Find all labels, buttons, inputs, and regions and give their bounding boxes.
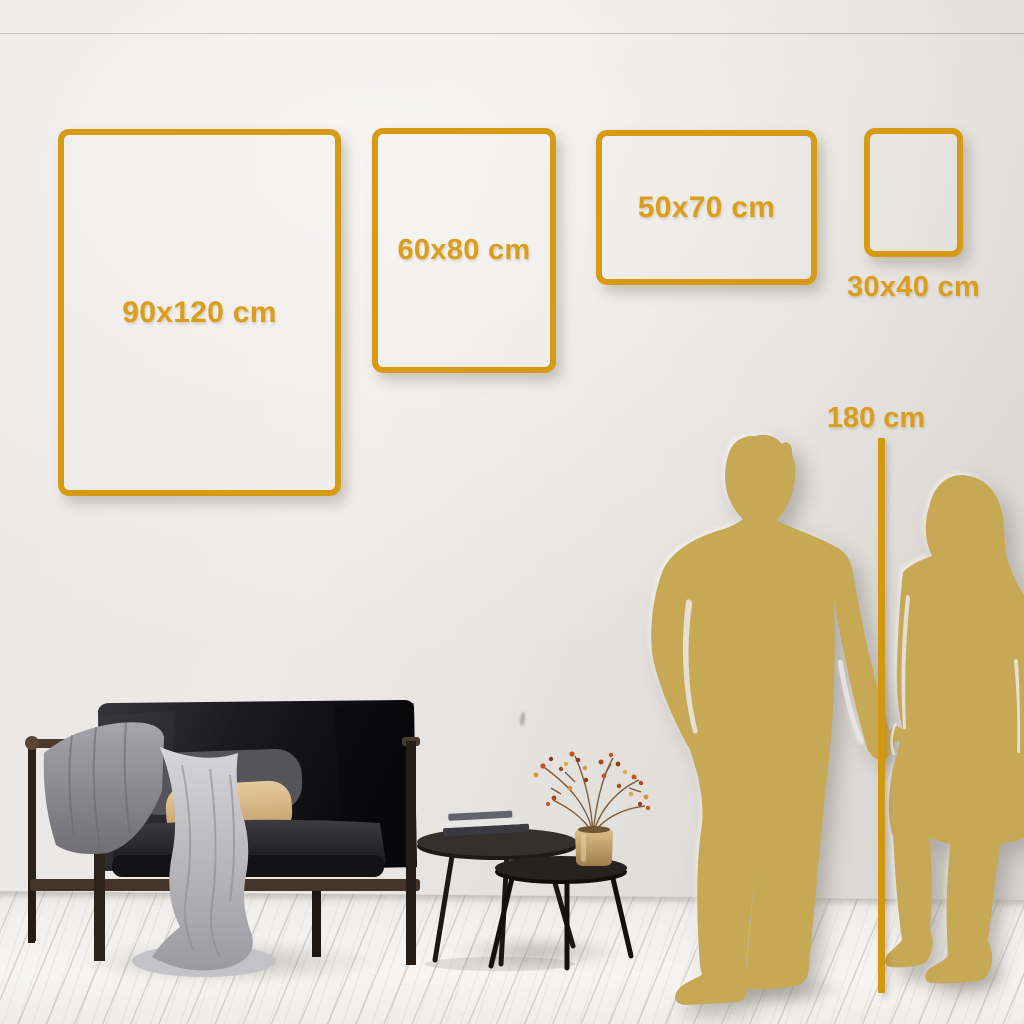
vase-highlight <box>581 834 586 862</box>
frame-30x40-label: 30x40 cm <box>847 271 980 304</box>
wall-smudge <box>519 712 526 727</box>
vase-mouth <box>578 826 610 833</box>
height-reference-line <box>878 438 885 993</box>
sofa-mid-leg <box>312 891 321 957</box>
frame-60x80-label: 60x80 cm <box>397 234 530 267</box>
frame-30x40-group: 30x40 cm <box>864 128 963 257</box>
books <box>438 810 529 837</box>
brass-vase <box>575 829 613 866</box>
frame-50x70: 50x70 cm <box>596 130 817 285</box>
frame-30x40 <box>864 128 963 257</box>
ceiling-line <box>0 33 1024 34</box>
frame-90x120-label: 90x120 cm <box>122 296 277 330</box>
man-silhouette <box>651 435 894 1005</box>
height-reference-label: 180 cm <box>796 402 956 435</box>
frame-60x80: 60x80 cm <box>372 128 556 373</box>
frame-50x70-label: 50x70 cm <box>638 191 776 225</box>
size-guide-scene: 180 cm 90x120 cm 60x80 cm 50x70 cm 30x40… <box>0 0 1024 1024</box>
frame-90x120: 90x120 cm <box>58 129 341 496</box>
coffee-tables <box>415 742 655 978</box>
plant-berries <box>534 751 651 810</box>
rail-knob <box>25 736 39 750</box>
sofa-rear-leg-lower <box>28 891 35 943</box>
sofa <box>14 695 440 985</box>
couple-silhouette <box>648 432 1024 1012</box>
small-table-legs <box>491 870 631 968</box>
woman-silhouette <box>885 475 1024 983</box>
